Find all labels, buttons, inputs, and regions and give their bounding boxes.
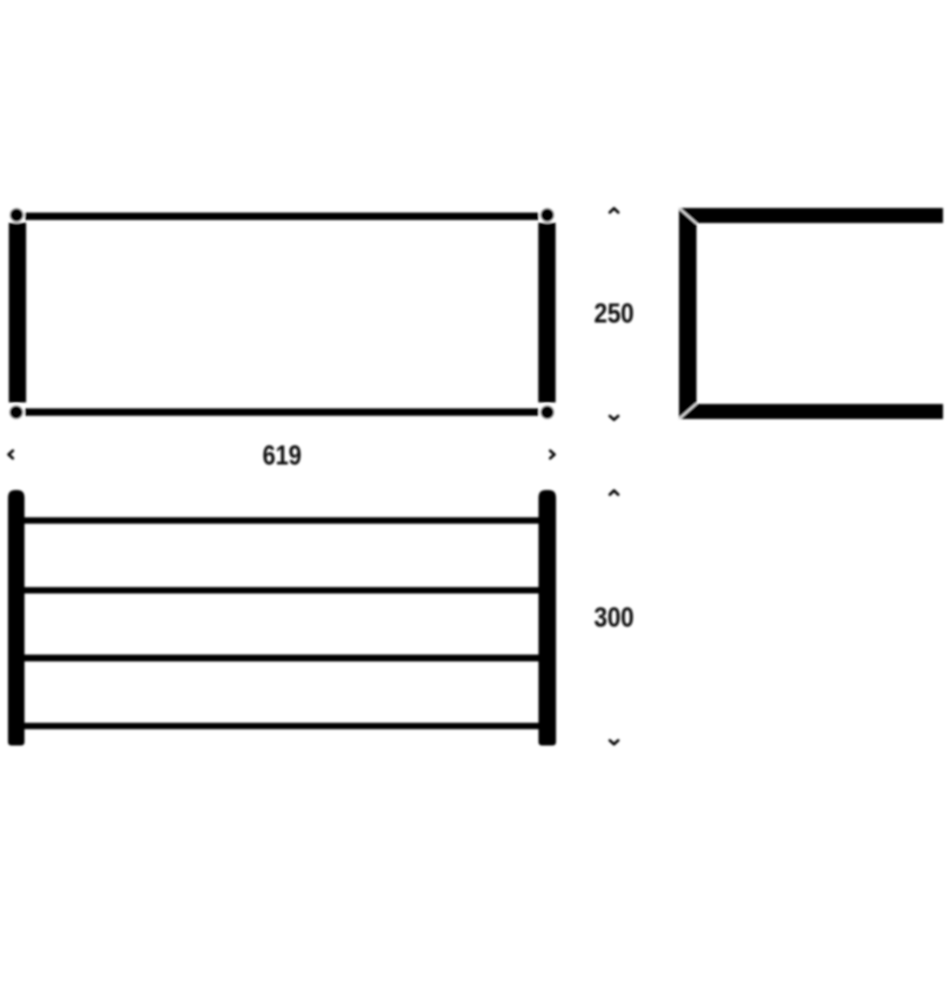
svg-text:250: 250 <box>594 298 634 329</box>
svg-text:619: 619 <box>263 440 302 471</box>
svg-text:300: 300 <box>594 602 634 633</box>
